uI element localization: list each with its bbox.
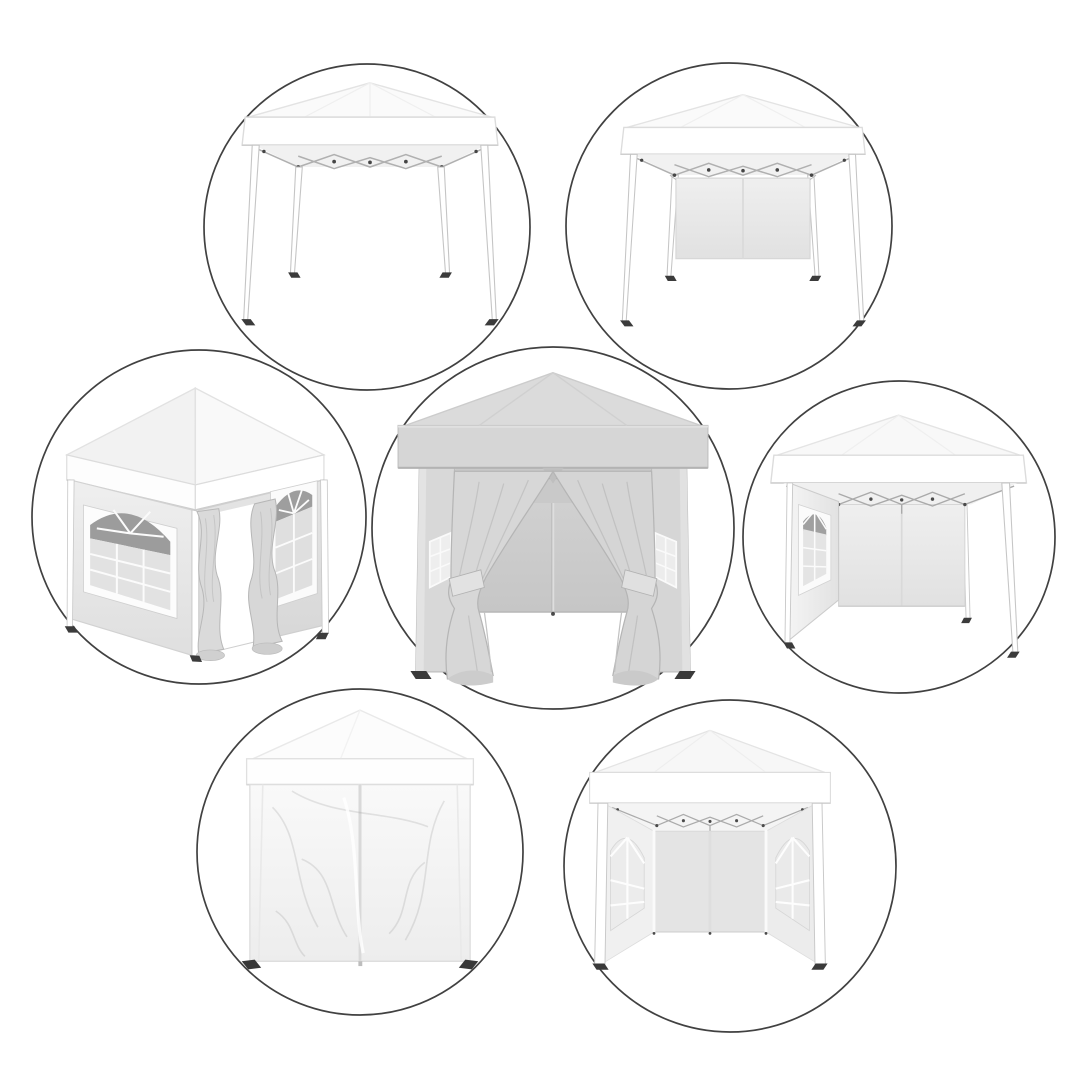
canopy-valance bbox=[771, 455, 1027, 483]
canopy-frame-illustration bbox=[241, 83, 498, 326]
canopy-valance bbox=[621, 127, 865, 154]
canopy-roof bbox=[777, 415, 1020, 455]
canopy-valance bbox=[242, 117, 498, 145]
open-front-gazebo-illustration bbox=[590, 730, 831, 969]
canopy-sidewall-illustration bbox=[771, 415, 1027, 658]
vignette-windows-curtains-angled: Angled view of gazebo with arched church… bbox=[32, 350, 366, 684]
gazebo-product-collage: Pop-up canopy frame with white top only,… bbox=[0, 0, 1080, 1080]
curtain-puddle bbox=[252, 643, 282, 654]
left-arched-window bbox=[799, 505, 831, 596]
back-left-leg bbox=[290, 167, 302, 273]
collage-canvas: Pop-up canopy frame with white top only,… bbox=[0, 0, 1080, 1080]
front-right-leg bbox=[481, 145, 497, 320]
leg-feet bbox=[783, 618, 1019, 658]
closed-gazebo-illustration bbox=[242, 710, 479, 969]
canopy-roof bbox=[595, 730, 825, 772]
canopy-back-wall-illustration bbox=[620, 95, 866, 327]
right-leg bbox=[321, 480, 329, 634]
front-left-leg bbox=[595, 803, 608, 964]
leg-feet bbox=[620, 276, 866, 327]
canopy-roof bbox=[253, 710, 467, 759]
legs bbox=[244, 145, 497, 320]
back-left-leg bbox=[67, 480, 74, 627]
leg-feet bbox=[241, 272, 498, 325]
vignette-two-window-sidewalls: Open-front gazebo interior with two arch… bbox=[564, 700, 896, 1032]
leg-feet bbox=[592, 964, 827, 970]
gazebo-angled-illustration bbox=[65, 388, 329, 662]
vignette-curtains-tied-open: Gray gazebo front view with doorway curt… bbox=[372, 347, 734, 709]
center-tab bbox=[358, 961, 362, 966]
canopy-valance bbox=[590, 772, 831, 803]
canopy-roof bbox=[627, 95, 859, 128]
canopy-roof bbox=[405, 373, 701, 426]
back-left-corner-post bbox=[653, 830, 656, 932]
vignette-one-back-wall: White canopy with single plain back side… bbox=[566, 63, 892, 389]
vignette-frame-only: Pop-up canopy frame with white top only,… bbox=[204, 64, 530, 390]
corner-leg bbox=[192, 510, 199, 656]
back-right-corner-post bbox=[765, 830, 768, 932]
vignette-window-sidewall-back-wall: Canopy with arched-window side panel and… bbox=[743, 381, 1055, 693]
canopy-valance bbox=[247, 759, 474, 785]
gazebo-open-curtains-illustration bbox=[398, 373, 708, 686]
front-right-leg bbox=[1002, 483, 1018, 652]
canopy-valance bbox=[398, 426, 708, 468]
vignette-fully-closed: Gazebo fully closed with zipped wrinkled… bbox=[197, 689, 523, 1015]
front-right-leg bbox=[812, 803, 825, 964]
back-right-leg bbox=[438, 167, 450, 273]
front-left-leg bbox=[244, 145, 260, 320]
